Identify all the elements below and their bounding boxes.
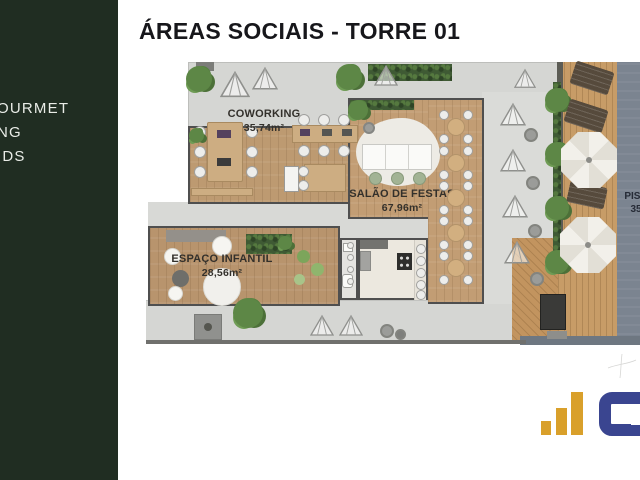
dining-table-group [439,251,473,285]
planter-pot-icon [363,122,375,134]
dining-table-group [439,181,473,215]
round-table-icon [447,259,465,277]
chair-icon [463,205,473,215]
perimeter-wall-bottom [146,340,526,344]
chair-icon [439,205,449,215]
piscina-name: PISC [616,191,640,204]
wall-seat-icon [347,254,354,261]
bar-counter [362,144,432,170]
grill-station [540,294,566,330]
round-table-icon [447,118,465,136]
skylight-pyramid-icon [500,148,526,174]
chair-icon [439,146,449,156]
desk-pair [304,164,346,192]
coworking-name: COWORKING [212,108,316,122]
slide: OURMET NG IDS ÁREAS SOCIAIS - TORRE 01 [0,0,640,480]
chair-icon [439,275,449,285]
plant-icon [336,64,362,90]
skylight-pyramid-icon [220,70,250,100]
skylight-pyramid-icon [339,314,363,338]
chair-icon [439,181,449,191]
plant-icon [278,236,292,250]
round-table-icon [447,189,465,207]
sidebar-item-kids: IDS [0,148,26,165]
chair-icon [298,145,310,157]
chair-icon [246,146,258,158]
laptop-icon [217,158,231,166]
plant-icon [233,298,263,328]
chair-icon [194,166,206,178]
beanbag-icon [311,263,324,276]
coworking-area: 35,74m² [212,122,316,135]
planter-dot-icon [204,323,212,331]
stool-icon [416,268,426,278]
chair-icon [439,110,449,120]
chair-icon [298,180,309,191]
umbrella-icon [560,217,616,273]
beanbag-icon [297,250,310,263]
round-table-icon [447,154,465,172]
plant-icon [545,88,569,112]
planter-pot-icon [528,224,542,238]
planter-pot-icon [524,128,538,142]
chair-icon [439,251,449,261]
wall-seat-icon [347,278,354,285]
fridge-icon [360,251,371,271]
skylight-pyramid-icon [514,68,536,90]
chair-icon [246,166,258,178]
chair-icon [338,145,350,157]
logo-bar-icon [556,408,567,435]
planter-pot-icon [530,272,544,286]
grill-shelf [547,331,567,339]
bench [191,188,253,196]
skylight-pyramid-icon [374,64,398,88]
bar-stool-icon [369,172,382,185]
skylight-pyramid-icon [504,240,530,266]
piscina-area: 35 [616,204,640,217]
dining-table-group [439,216,473,250]
plant-icon [186,66,212,92]
piscina-label: PISC 35 [616,191,640,216]
pool-edge-bottom [520,336,640,345]
dining-table-group [439,110,473,144]
chair-icon [463,275,473,285]
planter-pot-icon [395,329,406,340]
logo-bar-icon [541,421,551,435]
chair-icon [463,146,473,156]
chair-icon [439,216,449,226]
laptop-icon [342,129,352,136]
chair-icon [463,134,473,144]
plant-icon [348,100,368,120]
chair-icon [439,134,449,144]
logo-bar-icon [571,392,583,435]
chair-icon [463,181,473,191]
coworking-label: COWORKING 35,74m² [212,108,316,135]
skylight-pyramid-icon [502,194,528,220]
stove-icon [397,253,412,270]
planter-pot-icon [526,176,540,190]
stool-icon [416,244,426,254]
infantil-area: 28,56m² [166,267,278,280]
wall-seat-icon [347,266,354,273]
plant-icon [545,196,569,220]
chair-icon [463,240,473,250]
sidebar: OURMET NG IDS [0,0,118,480]
infantil-name: ESPAÇO INFANTIL [166,253,278,267]
chair-icon [439,170,449,180]
umbrella-icon [561,132,617,188]
chair-icon [463,216,473,226]
chair-icon [439,240,449,250]
wall-seat-icon [347,242,354,249]
skylight-pyramid-icon [310,314,334,338]
chair-icon [463,170,473,180]
kitchen-cabinets [360,240,388,249]
page-title: ÁREAS SOCIAIS - TORRE 01 [139,18,460,45]
beanbag-icon [294,274,305,285]
chair-icon [463,110,473,120]
chair-icon [194,146,206,158]
plant-icon [189,128,204,143]
sidebar-item-gourmet: OURMET [0,100,69,117]
bar-stool-icon [391,172,404,185]
chair-icon [318,114,330,126]
chair-icon [318,145,330,157]
skylight-pyramid-icon [500,102,526,128]
stool-icon [416,280,426,290]
logo-letter-c-gap [631,404,640,425]
chair-icon [463,251,473,261]
sidebar-item-living: NG [0,124,22,141]
chair-icon [298,166,309,177]
dining-table-group [439,146,473,180]
sink-unit [284,166,299,192]
laptop-icon [322,129,332,136]
stool-icon [416,256,426,266]
round-table-icon [447,224,465,242]
play-rug-small [168,286,183,301]
skylight-pyramid-icon [252,66,278,92]
infantil-label: ESPAÇO INFANTIL 28,56m² [166,253,278,280]
bar-stool-icon [413,172,426,185]
stool-icon [416,290,426,300]
planter-pot-icon [380,324,394,338]
chair-icon [338,114,350,126]
logo-flourish-icon [606,352,638,380]
